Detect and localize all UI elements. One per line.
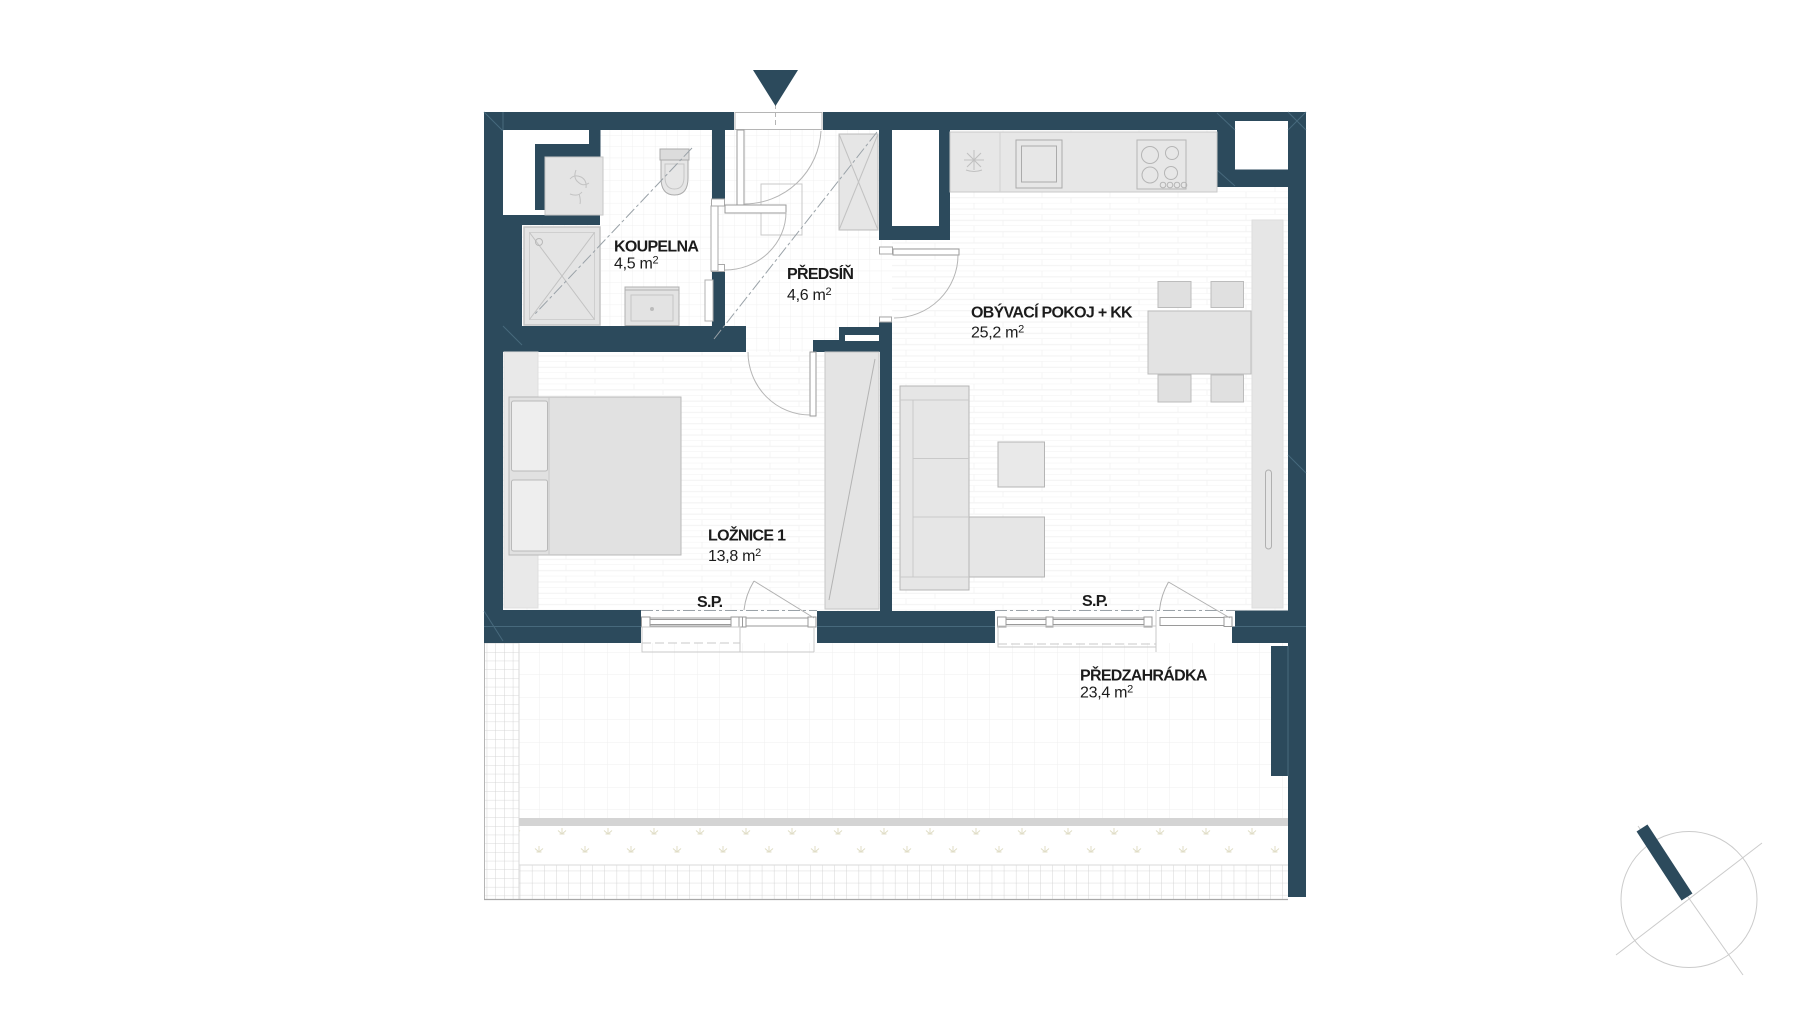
svg-text:4,6 m2: 4,6 m2: [787, 286, 832, 304]
svg-text:PŘEDZAHRÁDKA: PŘEDZAHRÁDKA: [1080, 666, 1208, 685]
svg-text:4,5 m2: 4,5 m2: [614, 255, 659, 273]
svg-text:OBÝVACÍ POKOJ + KK: OBÝVACÍ POKOJ + KK: [971, 303, 1133, 322]
svg-text:PŘEDSÍŇ: PŘEDSÍŇ: [787, 264, 853, 283]
svg-text:LOŽNICE 1: LOŽNICE 1: [708, 526, 786, 545]
svg-text:23,4 m2: 23,4 m2: [1080, 684, 1133, 702]
svg-text:13,8 m2: 13,8 m2: [708, 547, 761, 565]
svg-text:S.P.: S.P.: [1082, 593, 1108, 610]
svg-text:25,2 m2: 25,2 m2: [971, 324, 1024, 342]
svg-text:KOUPELNA: KOUPELNA: [614, 239, 699, 256]
svg-text:S.P.: S.P.: [697, 594, 723, 611]
